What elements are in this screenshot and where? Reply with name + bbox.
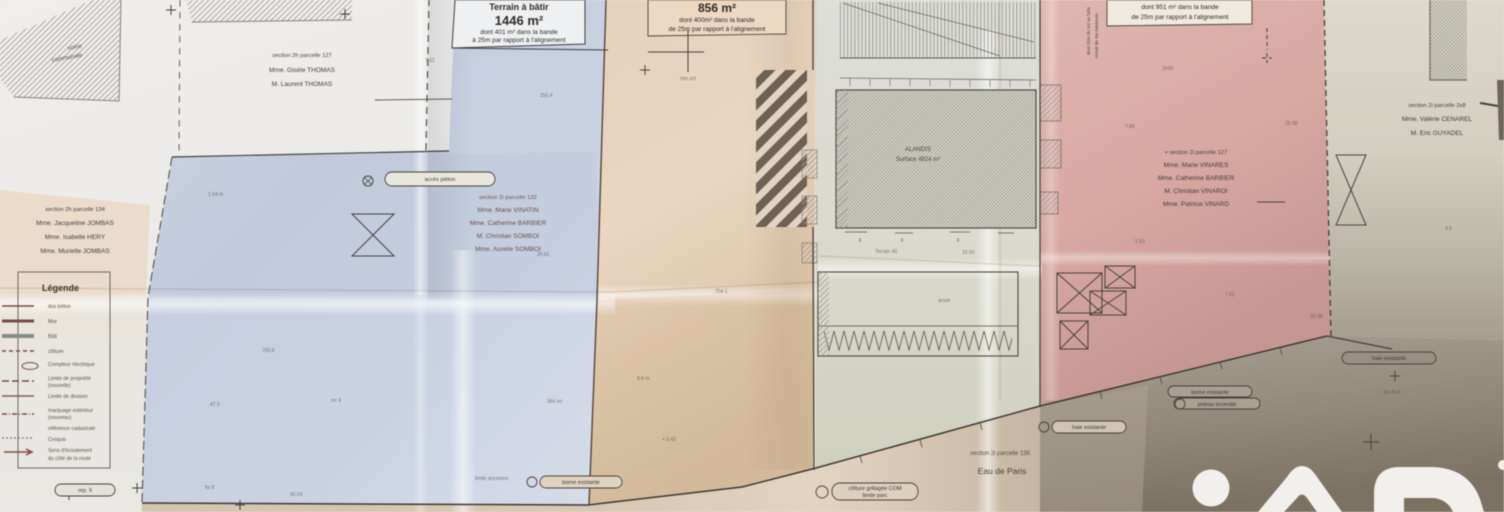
svg-text:Terrain à bâtir: Terrain à bâtir xyxy=(489,2,549,12)
svg-text:4.6: 4.6 xyxy=(1445,226,1452,232)
svg-text:haie existante: haie existante xyxy=(1072,425,1106,431)
svg-text:760.8: 760.8 xyxy=(262,348,275,354)
svg-text:M. Christian VINAROI: M. Christian VINAROI xyxy=(1164,188,1227,195)
svg-text:7.62: 7.62 xyxy=(1225,292,1235,298)
svg-text:(nouveau): (nouveau) xyxy=(48,415,72,421)
svg-text:nes.sol: nes.sol xyxy=(680,76,696,82)
svg-text:section 2h parcelle 127: section 2h parcelle 127 xyxy=(272,53,332,59)
svg-text:Limite de division: Limite de division xyxy=(48,394,88,400)
svg-text:364 m²: 364 m² xyxy=(547,399,563,405)
svg-text:Bâti: Bâti xyxy=(48,334,57,340)
svg-text:Mme. Jacqueline JOMBAS: Mme. Jacqueline JOMBAS xyxy=(36,220,114,227)
svg-text:Mme. Valérie CENAREL: Mme. Valérie CENAREL xyxy=(1402,116,1473,123)
svg-text:Mme. Catherine BARBIER: Mme. Catherine BARBIER xyxy=(1158,175,1235,182)
svg-text:29.08: 29.08 xyxy=(1310,314,1323,320)
svg-text:M. Christian SOMBOI: M. Christian SOMBOI xyxy=(477,233,540,240)
svg-text:haie existante: haie existante xyxy=(1372,356,1406,362)
svg-text:rep. 5: rep. 5 xyxy=(78,488,92,494)
svg-text:Compteur électrique: Compteur électrique xyxy=(48,362,95,368)
svg-text:à 25m par rapport à l'aligneme: à 25m par rapport à l'alignement xyxy=(472,37,566,44)
svg-text:de 25m par rapport à l'alignem: de 25m par rapport à l'alignement xyxy=(1132,14,1229,21)
svg-text:du côté de la route: du côté de la route xyxy=(48,456,91,462)
svg-text:borne existante: borne existante xyxy=(562,480,600,486)
svg-text:Mme. Murielle JOMBAS: Mme. Murielle JOMBAS xyxy=(40,248,110,255)
svg-text:section 2h parcelle 134: section 2h parcelle 134 xyxy=(45,207,105,213)
svg-text:Mme. Gisèle THOMAS: Mme. Gisèle THOMAS xyxy=(269,67,336,74)
svg-text:accès piéton: accès piéton xyxy=(425,177,456,183)
svg-text:+ section 2i parcelle 127: + section 2i parcelle 127 xyxy=(1165,150,1228,156)
svg-text:arase: arase xyxy=(938,298,951,304)
svg-text:Mur: Mur xyxy=(48,319,57,325)
svg-text:7.62: 7.62 xyxy=(425,58,435,64)
svg-text:704 1: 704 1 xyxy=(715,289,728,295)
svg-text:1446 m²: 1446 m² xyxy=(495,13,544,28)
svg-text:limite parc: limite parc xyxy=(862,493,887,499)
svg-text:borne existante: borne existante xyxy=(1191,390,1229,396)
svg-text:dont 951 m² dans la bande: dont 951 m² dans la bande xyxy=(1141,4,1219,11)
svg-text:10.00: 10.00 xyxy=(962,250,975,256)
svg-text:Limite de propriété: Limite de propriété xyxy=(48,376,91,382)
svg-text:marquage extérieur: marquage extérieur xyxy=(48,408,93,414)
svg-text:Mme. Marie VINATIN: Mme. Marie VINATIN xyxy=(477,207,539,214)
svg-text:clôture: clôture xyxy=(48,349,64,355)
svg-text:Sens d'écoulement: Sens d'écoulement xyxy=(48,448,93,454)
svg-text:856 m²: 856 m² xyxy=(698,1,736,15)
svg-text:référence cadastrale: référence cadastrale xyxy=(48,426,95,432)
svg-text:M. Eric GUYADEL: M. Eric GUYADEL xyxy=(1411,130,1464,137)
svg-text:poteau incendie: poteau incendie xyxy=(1198,402,1237,408)
svg-text:limite ancienne: limite ancienne xyxy=(475,476,509,482)
svg-text:de 25m par rapport à l'alignem: de 25m par rapport à l'alignement xyxy=(669,26,766,33)
svg-text:47.5: 47.5 xyxy=(210,402,220,408)
svg-text:clôture grillagée COM: clôture grillagée COM xyxy=(848,486,902,492)
svg-text:dont 400m² dans la bande: dont 400m² dans la bande xyxy=(679,17,755,24)
svg-text:section 2i parcelle 138: section 2i parcelle 138 xyxy=(970,451,1030,457)
svg-text:1.04 m: 1.04 m xyxy=(208,192,223,198)
svg-text:Mme. Aurelie SOMBOI: Mme. Aurelie SOMBOI xyxy=(475,246,541,253)
svg-text:M. Laurent THOMAS: M. Laurent THOMAS xyxy=(272,81,333,88)
svg-text:Mme. Patricia VINARD: Mme. Patricia VINARD xyxy=(1163,201,1229,208)
svg-text:150.4: 150.4 xyxy=(540,93,553,99)
svg-text:m² 4: m² 4 xyxy=(331,398,341,404)
svg-text:8.6 m: 8.6 m xyxy=(637,376,650,382)
svg-text:(nouvelle): (nouvelle) xyxy=(48,383,71,389)
svg-text:Légende: Légende xyxy=(42,283,79,293)
svg-text:26.61: 26.61 xyxy=(537,252,550,258)
svg-text:Eau de Paris: Eau de Paris xyxy=(978,466,1027,476)
svg-text:dont 55m du sol au falte: dont 55m du sol au falte xyxy=(1086,6,1091,55)
svg-text:Terrain 46: Terrain 46 xyxy=(875,249,897,255)
svg-text:section 2i parcelle 132: section 2i parcelle 132 xyxy=(479,195,537,201)
svg-text:+ 5.42: + 5.42 xyxy=(662,437,676,443)
svg-text:Mme. Catherine BARBIER: Mme. Catherine BARBIER xyxy=(470,220,547,227)
svg-text:1h40: 1h40 xyxy=(1162,66,1173,72)
svg-text:25.08: 25.08 xyxy=(1285,121,1298,127)
svg-text:retrait de 4m minimum: retrait de 4m minimum xyxy=(1094,13,1099,58)
svg-text:66.04: 66.04 xyxy=(290,492,303,498)
svg-text:7.80: 7.80 xyxy=(1125,124,1135,130)
svg-text:dont 401 m² dans la bande: dont 401 m² dans la bande xyxy=(480,29,558,36)
svg-text:Mme. Isabelle HERY: Mme. Isabelle HERY xyxy=(45,234,106,241)
svg-text:ALANDIS: ALANDIS xyxy=(905,147,931,153)
svg-text:Croquis: Croquis xyxy=(48,437,66,443)
svg-text:8a 80.6: 8a 80.6 xyxy=(1384,390,1401,396)
svg-text:Mme. Marie VINARES: Mme. Marie VINARES xyxy=(1164,162,1229,169)
svg-text:dos béton: dos béton xyxy=(48,304,71,310)
svg-text:Surface 4824 m²: Surface 4824 m² xyxy=(896,157,940,163)
svg-text:1.53: 1.53 xyxy=(1135,239,1145,245)
svg-text:section 2i parcelle 2x8: section 2i parcelle 2x8 xyxy=(1408,103,1465,109)
svg-text:fis 8: fis 8 xyxy=(205,485,214,491)
